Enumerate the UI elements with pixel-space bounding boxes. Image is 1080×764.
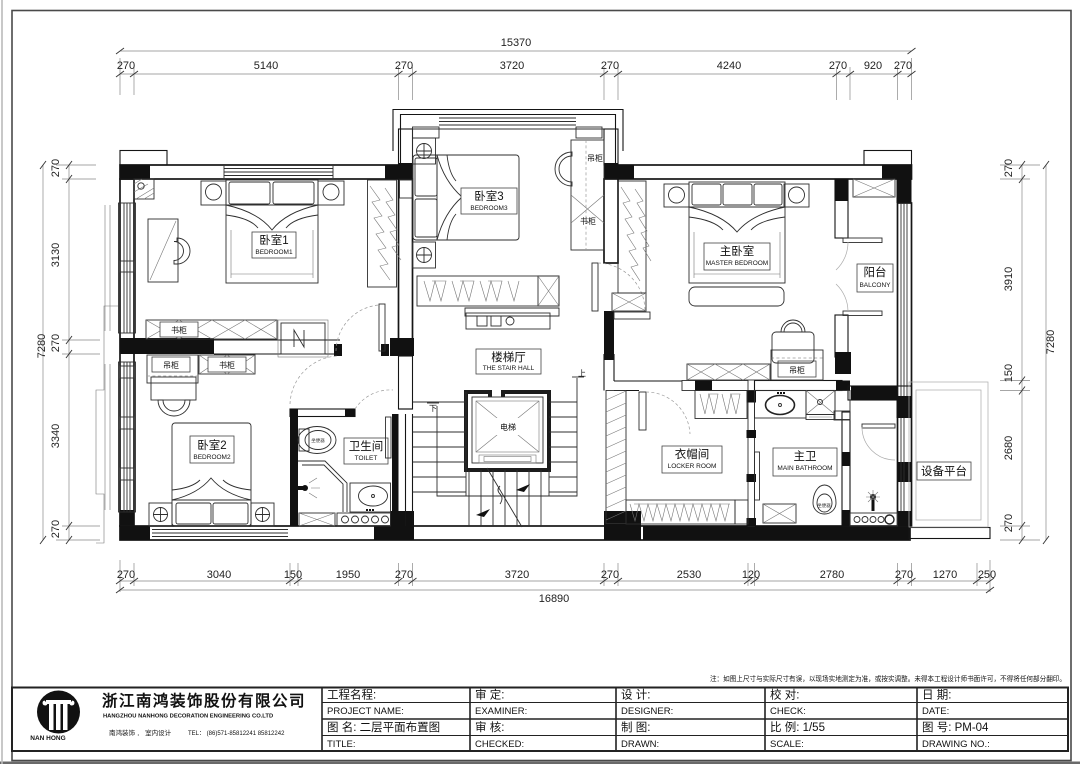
svg-text:HANGZHOU NANHONG DECORATION: HANGZHOU NANHONG DECORATION ENGINEERING …	[103, 714, 273, 720]
svg-text:2780: 2780	[820, 569, 844, 581]
svg-text:注：如图上尺寸与实际尺寸有误，以现场实地测定为准，或按实调整: 注：如图上尺寸与实际尺寸有误，以现场实地测定为准，或按实调整。未得本工程设计师书…	[710, 674, 1066, 683]
svg-text:设 计:: 设 计:	[621, 689, 650, 702]
svg-text:卫生间: 卫生间	[349, 439, 384, 453]
svg-text:书柜: 书柜	[219, 360, 235, 370]
svg-text:3720: 3720	[505, 569, 529, 581]
svg-text:卧室2: 卧室2	[197, 438, 226, 452]
svg-text:THE STAIR HALL: THE STAIR HALL	[483, 365, 535, 372]
svg-text:270: 270	[117, 60, 135, 72]
svg-text:DESIGNER:: DESIGNER:	[621, 706, 673, 717]
svg-text:1270: 1270	[933, 569, 957, 581]
svg-text:浙江南鸿装饰股份有限公司: 浙江南鸿装饰股份有限公司	[102, 691, 306, 710]
svg-text:CHECKED:: CHECKED:	[475, 739, 524, 750]
svg-text:270: 270	[395, 60, 413, 72]
svg-text:270: 270	[117, 569, 135, 581]
svg-text:TOILET: TOILET	[355, 455, 378, 462]
svg-text:衣帽间: 衣帽间	[675, 447, 710, 461]
svg-text:BALCONY: BALCONY	[859, 282, 891, 289]
svg-text:主卧室: 主卧室	[720, 244, 755, 258]
svg-text:MASTER BEDROOM: MASTER BEDROOM	[706, 260, 768, 267]
svg-text:7280: 7280	[1045, 330, 1057, 354]
svg-text:DATE:: DATE:	[922, 706, 949, 717]
svg-text:图 名: 二层平面布置图: 图 名: 二层平面布置图	[327, 720, 440, 734]
svg-text:校 对:: 校 对:	[770, 688, 799, 702]
svg-text:卧室1: 卧室1	[259, 233, 288, 247]
svg-text:2680: 2680	[1003, 436, 1015, 460]
svg-text:南鸿装饰 ． 室内设计: 南鸿装饰 ． 室内设计	[109, 728, 172, 737]
svg-text:主卫: 主卫	[794, 450, 817, 463]
svg-text:3130: 3130	[50, 243, 62, 267]
svg-text:EXAMINER:: EXAMINER:	[475, 706, 527, 717]
svg-text:270: 270	[895, 569, 913, 581]
svg-text:吊柜: 吊柜	[163, 360, 179, 370]
svg-text:审 核:: 审 核:	[475, 720, 504, 734]
svg-text:图 号: PM-04: 图 号: PM-04	[922, 721, 989, 734]
svg-text:坐便器: 坐便器	[817, 502, 831, 509]
svg-text:BEDROOM2: BEDROOM2	[193, 454, 231, 461]
svg-text:270: 270	[50, 520, 62, 538]
svg-text:270: 270	[1003, 159, 1015, 177]
svg-text:MAIN BATHROOM: MAIN BATHROOM	[777, 465, 832, 472]
svg-text:BEDROOM1: BEDROOM1	[255, 249, 293, 256]
svg-text:4240: 4240	[717, 60, 741, 72]
svg-text:日 期:: 日 期:	[922, 689, 951, 702]
svg-text:书柜: 书柜	[580, 216, 596, 226]
svg-text:3910: 3910	[1003, 267, 1015, 291]
svg-text:120: 120	[742, 569, 760, 581]
svg-text:制 图:: 制 图:	[621, 721, 650, 734]
svg-text:270: 270	[50, 334, 62, 352]
svg-text:吊柜: 吊柜	[789, 365, 805, 375]
svg-text:16890: 16890	[539, 593, 570, 605]
svg-text:250: 250	[978, 569, 996, 581]
svg-text:270: 270	[601, 569, 619, 581]
svg-text:150: 150	[284, 569, 302, 581]
svg-text:DRAWING NO.:: DRAWING NO.:	[922, 739, 990, 750]
svg-text:150: 150	[1003, 364, 1015, 382]
svg-text:15370: 15370	[501, 37, 532, 49]
svg-text:270: 270	[894, 60, 912, 72]
svg-text:NAN HONG: NAN HONG	[30, 735, 65, 742]
svg-text:270: 270	[829, 60, 847, 72]
svg-text:3040: 3040	[207, 569, 231, 581]
svg-text:坐便器: 坐便器	[311, 437, 325, 444]
svg-text:3340: 3340	[50, 424, 62, 448]
svg-text:270: 270	[1003, 514, 1015, 532]
svg-text:阳台: 阳台	[864, 265, 887, 279]
svg-text:270: 270	[395, 569, 413, 581]
svg-text:书柜: 书柜	[171, 325, 187, 335]
svg-text:PROJECT NAME:: PROJECT NAME:	[327, 706, 404, 717]
svg-text:工程名程:: 工程名程:	[327, 688, 376, 702]
svg-text:DRAWN:: DRAWN:	[621, 739, 659, 750]
svg-text:7280: 7280	[36, 334, 48, 358]
svg-text:设备平台: 设备平台	[921, 464, 967, 478]
svg-text:楼梯厅: 楼梯厅	[491, 350, 526, 364]
svg-text:LOCKER ROOM: LOCKER ROOM	[668, 463, 717, 470]
svg-text:比 例: 1/55: 比 例: 1/55	[770, 720, 825, 734]
svg-text:吊柜: 吊柜	[587, 153, 603, 163]
svg-text:下: 下	[429, 404, 437, 413]
svg-text:270: 270	[601, 60, 619, 72]
svg-text:卧室3: 卧室3	[474, 189, 503, 203]
svg-text:920: 920	[864, 60, 882, 72]
svg-text:BEDROOM3: BEDROOM3	[470, 205, 508, 212]
svg-text:2530: 2530	[677, 569, 701, 581]
svg-text:5140: 5140	[254, 60, 278, 72]
svg-text:审 定:: 审 定:	[475, 688, 504, 702]
svg-text:电梯: 电梯	[500, 422, 516, 432]
svg-text:3720: 3720	[500, 60, 524, 72]
svg-text:CHECK:: CHECK:	[770, 706, 806, 717]
svg-text:270: 270	[50, 159, 62, 177]
svg-text:1950: 1950	[336, 569, 360, 581]
svg-text:TEL： (86)571-85812241 858122: TEL： (86)571-85812241 85812242	[188, 731, 285, 737]
svg-text:TITLE:: TITLE:	[327, 739, 356, 750]
svg-text:SCALE:: SCALE:	[770, 739, 804, 750]
